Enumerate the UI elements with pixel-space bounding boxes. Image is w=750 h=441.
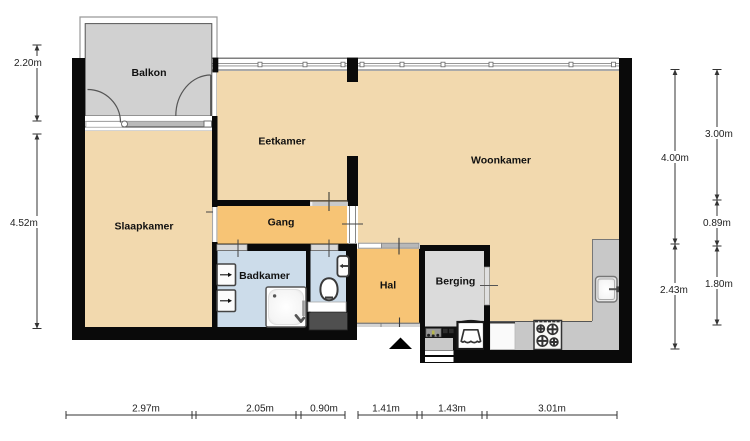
svg-text:1.43m: 1.43m [438, 404, 466, 415]
svg-text:Hal: Hal [380, 280, 396, 292]
svg-text:2.05m: 2.05m [246, 404, 274, 415]
svg-text:0.89m: 0.89m [703, 218, 731, 229]
svg-text:2.97m: 2.97m [132, 404, 160, 415]
svg-text:Gang: Gang [268, 217, 295, 229]
svg-text:4.00m: 4.00m [661, 153, 689, 164]
svg-text:1.41m: 1.41m [372, 404, 400, 415]
svg-text:Badkamer: Badkamer [239, 270, 290, 282]
svg-text:0.90m: 0.90m [310, 404, 338, 415]
svg-text:4.52m: 4.52m [10, 218, 38, 229]
svg-text:3.00m: 3.00m [705, 129, 733, 140]
svg-text:Berging: Berging [436, 276, 476, 288]
svg-text:Eetkamer: Eetkamer [258, 136, 305, 148]
svg-text:2.43m: 2.43m [660, 285, 688, 296]
svg-text:1.80m: 1.80m [705, 279, 733, 290]
svg-text:Slaapkamer: Slaapkamer [115, 221, 174, 233]
svg-text:Balkon: Balkon [131, 67, 166, 79]
svg-text:2.20m: 2.20m [14, 58, 42, 69]
svg-text:Woonkamer: Woonkamer [471, 155, 531, 167]
svg-text:3.01m: 3.01m [538, 404, 566, 415]
